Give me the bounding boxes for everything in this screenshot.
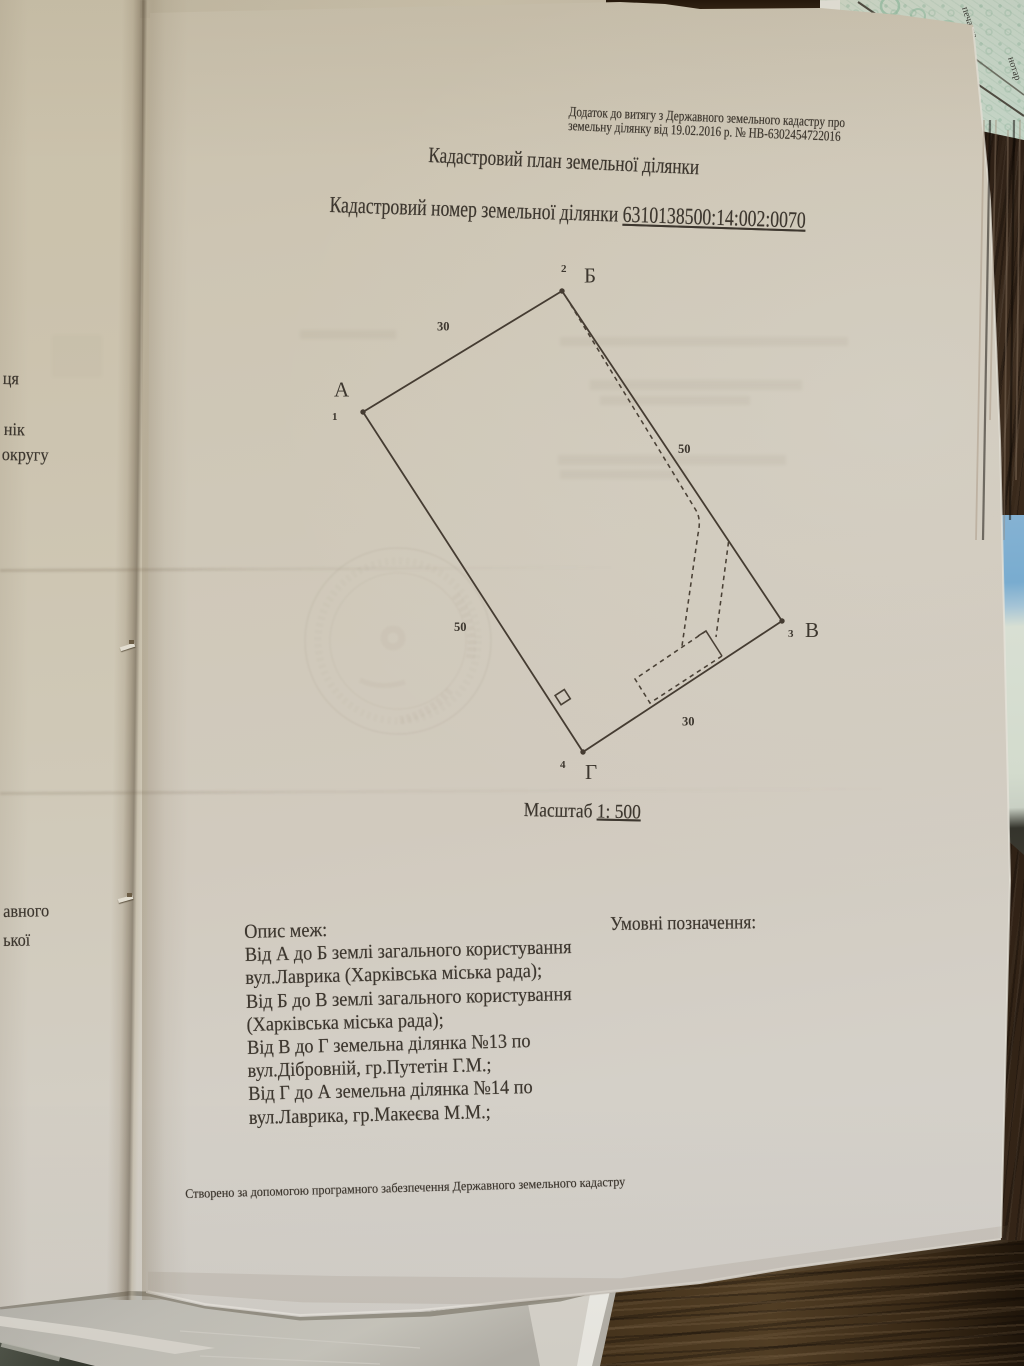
svg-text:3: 3 (788, 628, 794, 640)
svg-text:2: 2 (561, 263, 567, 275)
svg-text:В: В (805, 618, 819, 642)
svg-text:4: 4 (560, 759, 566, 771)
svg-text:50: 50 (454, 620, 467, 634)
svg-text:1: 1 (332, 411, 338, 423)
svg-text:30: 30 (682, 715, 695, 729)
svg-text:Г: Г (585, 760, 597, 784)
svg-text:30: 30 (437, 320, 450, 334)
svg-text:Б: Б (584, 264, 596, 288)
svg-text:А: А (334, 378, 350, 402)
svg-text:50: 50 (678, 442, 691, 456)
